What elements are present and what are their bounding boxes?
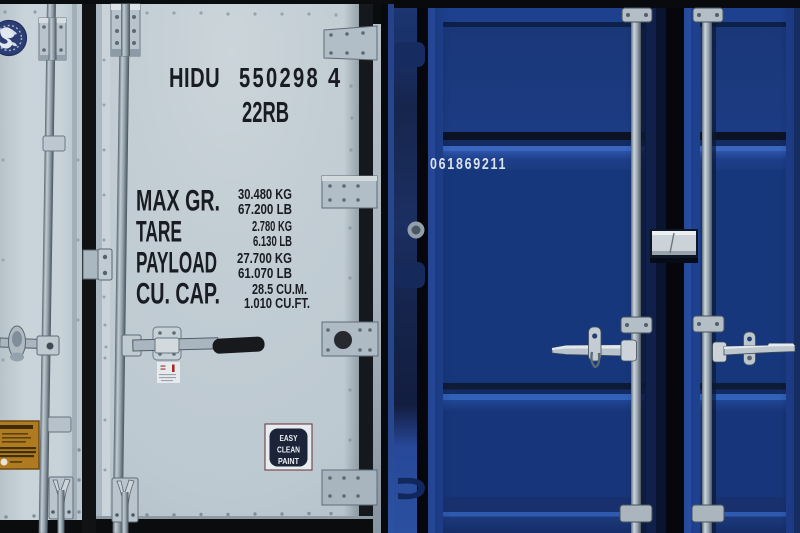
svg-text:22RB: 22RB <box>242 97 289 129</box>
svg-text:550298: 550298 <box>239 63 320 94</box>
svg-text:6.130 LB: 6.130 LB <box>253 234 292 250</box>
svg-text:PAYLOAD: PAYLOAD <box>136 247 217 280</box>
svg-text:HIDU: HIDU <box>169 63 220 94</box>
svg-text:67.200 LB: 67.200 LB <box>238 202 292 218</box>
svg-text:4: 4 <box>328 62 340 93</box>
svg-text:061869211: 061869211 <box>430 156 507 174</box>
svg-text:TARE: TARE <box>136 216 182 249</box>
svg-text:CU. CAP.: CU. CAP. <box>136 278 220 311</box>
svg-text:1.010 CU.FT.: 1.010 CU.FT. <box>244 296 310 312</box>
svg-text:30.480 KG: 30.480 KG <box>238 187 292 203</box>
svg-text:27.700 KG: 27.700 KG <box>237 251 292 267</box>
svg-text:MAX GR.: MAX GR. <box>136 185 220 218</box>
svg-text:2.780 KG: 2.780 KG <box>252 219 292 235</box>
svg-text:61.070 LB: 61.070 LB <box>238 266 292 282</box>
svg-text:CLEAN: CLEAN <box>277 446 300 455</box>
svg-text:EASY: EASY <box>280 434 298 443</box>
svg-text:PAINT: PAINT <box>278 457 299 466</box>
